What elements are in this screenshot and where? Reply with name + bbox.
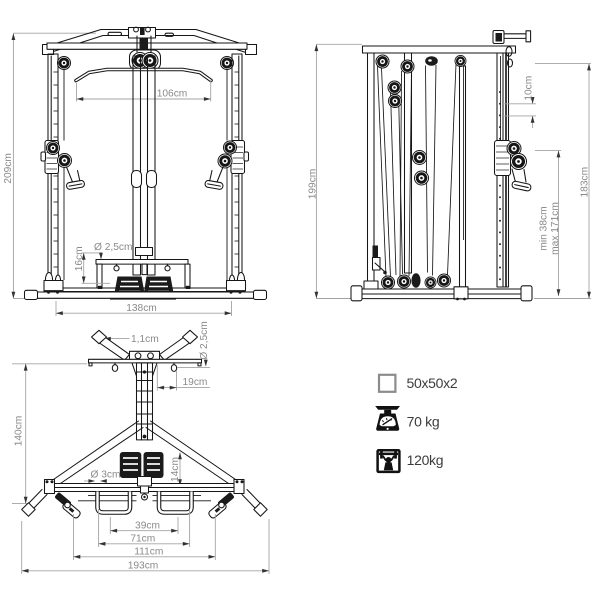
svg-text:Ø 2,5cm: Ø 2,5cm: [94, 242, 133, 253]
svg-text:199cm: 199cm: [307, 169, 318, 200]
svg-text:min 38cm: min 38cm: [539, 206, 550, 250]
svg-text:16cm: 16cm: [74, 246, 85, 271]
svg-text:183cm: 183cm: [579, 167, 590, 198]
svg-text:120kg: 120kg: [407, 452, 444, 468]
svg-text:Ø 3cm: Ø 3cm: [91, 470, 121, 481]
svg-text:138cm: 138cm: [126, 303, 157, 314]
svg-text:106cm: 106cm: [157, 89, 188, 100]
svg-text:19cm: 19cm: [183, 377, 208, 388]
svg-text:111cm: 111cm: [134, 547, 163, 558]
svg-text:193cm: 193cm: [128, 561, 159, 572]
svg-text:71cm: 71cm: [130, 534, 155, 545]
svg-text:14cm: 14cm: [170, 457, 181, 482]
svg-text:140cm: 140cm: [13, 416, 24, 447]
svg-text:10cm: 10cm: [524, 76, 535, 101]
svg-text:1,1cm: 1,1cm: [131, 334, 159, 345]
svg-text:39cm: 39cm: [135, 521, 160, 532]
svg-text:Ø 2,5cm: Ø 2,5cm: [199, 321, 210, 360]
svg-text:70 kg: 70 kg: [407, 413, 440, 429]
svg-text:209cm: 209cm: [3, 153, 14, 184]
svg-text:50x50x2: 50x50x2: [407, 375, 458, 391]
svg-text:max 171cm: max 171cm: [550, 202, 561, 255]
